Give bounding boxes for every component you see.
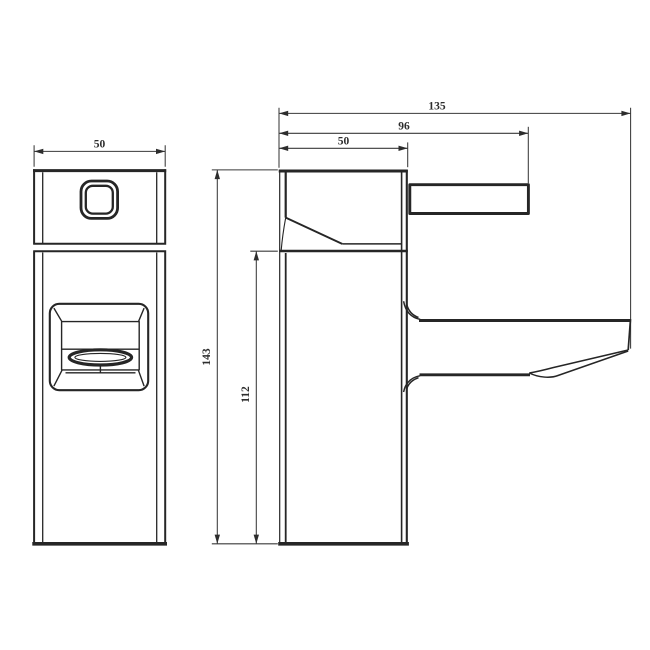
chamfer-diagonal xyxy=(286,218,343,244)
spout-recess-outer xyxy=(50,304,148,390)
spout-underside-lower xyxy=(529,351,628,377)
knob-inner-ring xyxy=(86,186,113,214)
arrowhead-up-icon xyxy=(254,251,259,260)
arrowhead-right-icon xyxy=(519,131,528,136)
side-view: 135 96 50 143 xyxy=(201,101,631,544)
back-corner-curve xyxy=(281,218,286,251)
dimension-label-handle-reach: 96 xyxy=(398,121,410,133)
outer-frame xyxy=(33,169,166,543)
side-dimension-overall-height: 143 xyxy=(201,170,278,544)
side-dimension-handle-reach: 96 xyxy=(279,121,528,184)
arrowhead-down-icon xyxy=(254,535,259,544)
arrowhead-right-icon xyxy=(156,149,165,154)
arrowhead-left-icon xyxy=(279,131,288,136)
extension-lines xyxy=(279,108,631,349)
arrowhead-left-icon xyxy=(279,146,288,151)
arrowhead-left-icon xyxy=(279,111,288,116)
dimension-label-body-height: 112 xyxy=(240,386,252,403)
arrowhead-left-icon xyxy=(34,149,43,154)
drawing-canvas: 50 135 xyxy=(0,0,650,650)
front-dimension-width: 50 xyxy=(34,139,165,167)
spout-underside-upper xyxy=(529,350,628,373)
technical-drawing: 50 135 xyxy=(0,0,650,650)
side-dimension-overall-length: 135 xyxy=(279,101,631,349)
dimension-label-front-width: 50 xyxy=(94,139,106,151)
arrowhead-right-icon xyxy=(399,146,408,151)
arrowhead-down-icon xyxy=(215,535,220,544)
aerator-ellipse xyxy=(69,350,131,365)
side-body-outline xyxy=(278,170,409,544)
dimension-label-overall-height: 143 xyxy=(201,348,213,366)
side-dimension-body-depth: 50 xyxy=(279,136,408,168)
front-handle-knob xyxy=(81,181,118,218)
arrowhead-right-icon xyxy=(621,111,630,116)
dimension-label-body-depth: 50 xyxy=(338,136,350,148)
front-body-outline xyxy=(32,169,167,544)
extension-lines xyxy=(212,170,278,544)
arrowhead-up-icon xyxy=(215,170,220,179)
handle-lever-outline xyxy=(410,185,529,214)
spout xyxy=(404,301,631,392)
side-dimension-body-height: 112 xyxy=(240,251,278,544)
handle-lever xyxy=(410,185,529,214)
front-view: 50 xyxy=(32,139,167,544)
aerator-ellipse-inner xyxy=(75,353,126,361)
front-spout-detail xyxy=(50,304,148,390)
spout-recess-inner xyxy=(54,308,144,386)
dimension-label-overall-length: 135 xyxy=(428,101,446,113)
